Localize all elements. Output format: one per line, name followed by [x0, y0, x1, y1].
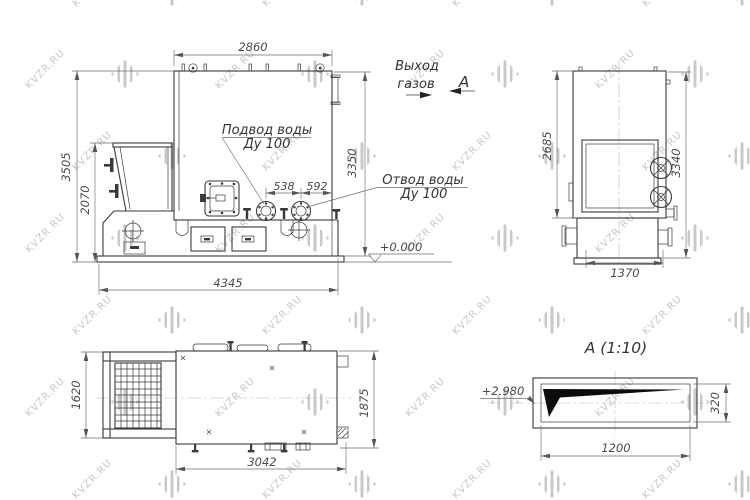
water-outlet-flange: [292, 202, 311, 221]
section-dim-height: 320: [708, 392, 722, 414]
drawing-sheet: KVZR.RUKVZR.RUKVZR.RUKVZR.RUKVZR.RUKVZR.…: [0, 0, 750, 500]
side-door: [582, 140, 658, 212]
grate-rail: [103, 429, 176, 438]
water-outlet-label-1: Отвод воды: [382, 173, 463, 188]
gas-outlet-label-1: Выход: [395, 59, 439, 74]
front-view: 2860 3505 2070 3350 538: [59, 40, 475, 295]
inspection-hatch: [200, 181, 239, 216]
side-dimensions: 2685 3340 1370: [540, 71, 691, 280]
bracket-icon: [176, 220, 188, 236]
plan-body: [176, 351, 337, 444]
water-outlet-label-2: Ду 100: [400, 187, 448, 202]
front-level-label: +0.000: [380, 240, 423, 254]
lower-body-left: [103, 211, 174, 256]
section-dim-width: 1200: [601, 441, 630, 455]
front-dim-flange-span: 538: [274, 180, 295, 193]
side-view: 2685 3340 1370: [540, 60, 691, 280]
base-plate: [97, 256, 344, 262]
furnace-doors: [191, 227, 266, 251]
boiler-drawing-svg: 2860 3505 2070 3350 538: [0, 0, 750, 500]
front-dim-height-total: 3505: [59, 152, 73, 181]
grate-rail: [103, 352, 176, 361]
front-dim-height-body: 3350: [345, 148, 359, 177]
grate-grid: [115, 363, 161, 428]
front-dim-top-width: 2860: [238, 40, 267, 54]
plan-dim-grate-width: 1620: [69, 380, 83, 409]
view-direction-arrow-icon: [449, 88, 461, 94]
crosshair-bolt-icon: [122, 219, 310, 242]
side-dim-width: 1370: [610, 266, 639, 280]
plan-dim-length: 3042: [247, 455, 276, 469]
section-level-label: +2.980: [482, 384, 525, 398]
plan-view: 1620 3042 1875: [69, 341, 379, 474]
water-inlet-label-2: Ду 100: [243, 137, 291, 152]
side-lower-box: [577, 218, 658, 258]
water-inlet-flange: [257, 202, 276, 221]
front-dim-length-total: 4345: [213, 276, 242, 290]
side-dim-door-height: 2685: [540, 131, 554, 160]
side-dim-height: 3340: [669, 148, 683, 177]
front-dim-flange-edge: 592: [307, 180, 328, 193]
front-dim-height-hopper: 2070: [78, 185, 92, 214]
front-labels: Подвод воды Ду 100 Отвод воды Ду 100 Вых…: [222, 59, 475, 207]
fuel-hopper: [104, 143, 174, 211]
gas-direction-arrow-icon: [420, 92, 432, 98]
water-inlet-label-1: Подвод воды: [222, 123, 312, 138]
section-title: А (1:10): [584, 339, 647, 357]
gas-outlet-label-2: газов: [397, 77, 434, 92]
side-body: [573, 71, 666, 218]
plan-bolts: [192, 341, 308, 452]
section-view: А (1:10) +2.980 1200 320: [480, 339, 731, 461]
plan-dim-width: 1875: [357, 388, 371, 417]
